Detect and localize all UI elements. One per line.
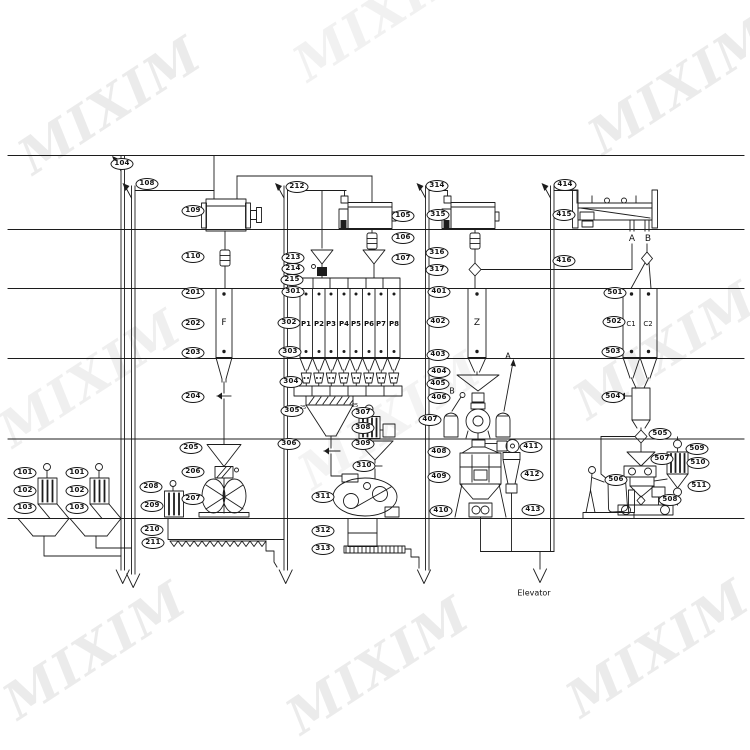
- equipment-tag-102: 102: [66, 485, 89, 497]
- bins-C1-C2: [623, 289, 657, 389]
- equipment-tag-101: 101: [66, 467, 89, 479]
- equipment-tag-416: 416: [553, 255, 576, 267]
- diagram-linework: [0, 0, 750, 750]
- equipment-tag-211: 211: [142, 537, 165, 549]
- equipment-tag-104: 104: [111, 158, 134, 170]
- equipment-tag-511: 511: [688, 480, 711, 492]
- diagram-text-Z: Z: [474, 318, 480, 328]
- bin-312-conveyor-313: [344, 519, 419, 569]
- equipment-tag-413: 413: [522, 504, 545, 516]
- equipment-tag-405: 405: [427, 378, 450, 390]
- equipment-tag-204: 204: [182, 391, 205, 403]
- diagram-text-B: B: [449, 387, 455, 396]
- equipment-tag-102: 102: [14, 485, 37, 497]
- equipment-tag-103: 103: [14, 502, 37, 514]
- equipment-tag-506: 506: [605, 474, 628, 486]
- equipment-tag-507: 507: [651, 453, 674, 465]
- diagram-text-F: F: [221, 318, 226, 328]
- equipment-tag-312: 312: [312, 525, 335, 537]
- equipment-tag-510: 510: [687, 457, 710, 469]
- equipment-tag-404: 404: [428, 366, 451, 378]
- equipment-tag-316: 316: [426, 247, 449, 259]
- bag-and-operator-506: [586, 467, 635, 513]
- equipment-tag-306: 306: [278, 438, 301, 450]
- equipment-tag-215: 215: [281, 274, 304, 286]
- bin-F: [216, 289, 232, 445]
- bin-battery-P1-P8: [294, 278, 402, 396]
- equipment-tag-206: 206: [182, 466, 205, 478]
- equipment-tag-411: 411: [520, 441, 543, 453]
- equipment-tag-203: 203: [182, 347, 205, 359]
- diagram-text-25: 25: [300, 405, 306, 411]
- equipment-tag-313: 313: [312, 543, 335, 555]
- mixer-bin-305: [306, 396, 353, 476]
- equipment-tag-201: 201: [182, 287, 205, 299]
- equipment-tag-412: 412: [521, 469, 544, 481]
- diagram-text-P5: P5: [351, 320, 361, 328]
- equipment-tag-509: 509: [686, 443, 709, 455]
- scourer-105-group: [311, 196, 396, 278]
- equipment-tag-408: 408: [428, 446, 451, 458]
- equipment-tag-415: 415: [553, 209, 576, 221]
- equipment-tag-308: 308: [352, 422, 375, 434]
- equipment-tag-505: 505: [649, 428, 672, 440]
- diagram-text-C2: C2: [643, 320, 652, 328]
- equipment-tag-406: 406: [428, 392, 451, 404]
- equipment-tag-209: 209: [141, 500, 164, 512]
- equipment-tag-107: 107: [392, 253, 415, 265]
- equipment-tag-414: 414: [554, 179, 577, 191]
- equipment-tag-101: 101: [14, 467, 37, 479]
- diagram-text-P7: P7: [376, 320, 386, 328]
- elevator-duct: [481, 517, 555, 583]
- equipment-tag-108: 108: [136, 178, 159, 190]
- chain-conveyor-210-211: [168, 519, 284, 568]
- equipment-tag-202: 202: [182, 318, 205, 330]
- equipment-tag-302: 302: [278, 317, 301, 329]
- equipment-tag-109: 109: [182, 205, 205, 217]
- bagging-station-205-207: [165, 445, 250, 518]
- drum-cleaner-109: [202, 199, 262, 289]
- equipment-tag-409: 409: [428, 471, 451, 483]
- equipment-tag-314: 314: [426, 180, 449, 192]
- cyclone-411-413: [485, 440, 520, 519]
- equipment-tag-105: 105: [392, 210, 415, 222]
- packing-scale-408-410: [455, 440, 506, 517]
- bin-Z: [468, 289, 486, 376]
- mill-group-404-406: [457, 375, 499, 440]
- diagram-text-P2: P2: [314, 320, 324, 328]
- equipment-tag-207: 207: [182, 493, 205, 505]
- equipment-tag-310: 310: [353, 460, 376, 472]
- equipment-tag-504: 504: [602, 391, 625, 403]
- equipment-tag-502: 502: [603, 316, 626, 328]
- diagram-text-C1: C1: [626, 320, 635, 328]
- packer-311: [333, 474, 399, 517]
- equipment-tag-212: 212: [286, 181, 309, 193]
- diagram-text-25: 25: [352, 403, 358, 409]
- equipment-tag-103: 103: [66, 502, 89, 514]
- equipment-tag-317: 317: [426, 264, 449, 276]
- equipment-tag-106: 106: [392, 232, 415, 244]
- floor-lines: [8, 156, 744, 519]
- diagram-text-A: A: [505, 352, 510, 361]
- diagram-text-P4: P4: [339, 320, 349, 328]
- equipment-tag-301: 301: [282, 286, 305, 298]
- equipment-tag-110: 110: [182, 251, 205, 263]
- equipment-tag-304: 304: [280, 376, 303, 388]
- diagram-text-P1: P1: [301, 320, 311, 328]
- diagram-text-P8: P8: [389, 320, 399, 328]
- equipment-tag-315: 315: [427, 209, 450, 221]
- equipment-tag-208: 208: [140, 481, 163, 493]
- equipment-tag-403: 403: [427, 349, 450, 361]
- equipment-tag-402: 402: [427, 316, 450, 328]
- diagram-text-P6: P6: [364, 320, 374, 328]
- diagram-text-Elevator: Elevator: [517, 589, 550, 598]
- equipment-tag-407: 407: [419, 414, 442, 426]
- equipment-tag-410: 410: [430, 505, 453, 517]
- equipment-tag-501: 501: [604, 287, 627, 299]
- equipment-tag-503: 503: [602, 346, 625, 358]
- equipment-tag-508: 508: [659, 494, 682, 506]
- equipment-tag-205: 205: [180, 442, 203, 454]
- equipment-tag-311: 311: [312, 491, 335, 503]
- process-flow-diagram: MIXIM MIXIM MIXIM MIXIM MIXIM MIXIM MIXI…: [0, 0, 750, 750]
- scourer-315-group: [442, 196, 632, 289]
- equipment-tag-401: 401: [428, 286, 451, 298]
- diagram-text-P3: P3: [326, 320, 336, 328]
- diagram-text-A: A: [629, 234, 635, 244]
- equipment-tag-210: 210: [141, 524, 164, 536]
- equipment-tag-309: 309: [352, 438, 375, 450]
- diagram-text-B: B: [645, 234, 651, 244]
- equipment-tag-303: 303: [279, 346, 302, 358]
